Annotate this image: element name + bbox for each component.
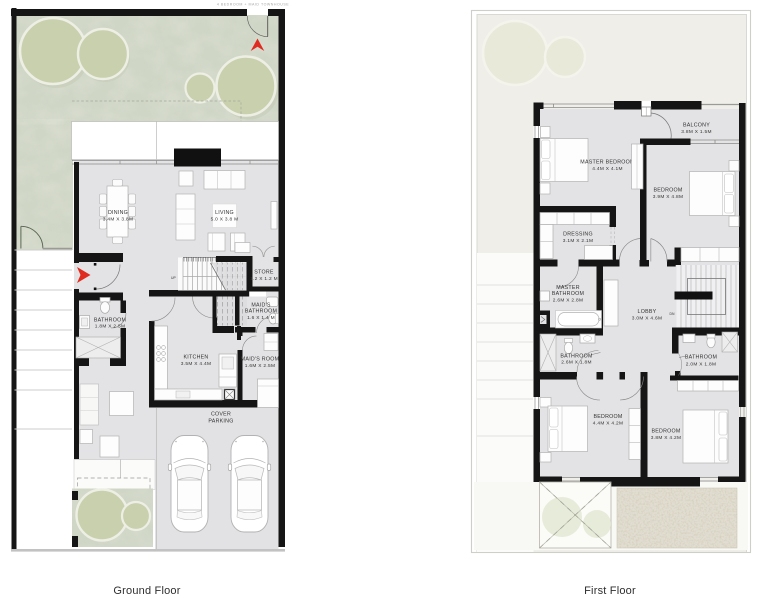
svg-text:BATHROOM: BATHROOM: [245, 309, 277, 315]
svg-text:2.6M X 2.8M: 2.6M X 2.8M: [553, 298, 584, 304]
svg-text:PARKING: PARKING: [208, 419, 233, 425]
svg-text:LOBBY: LOBBY: [638, 309, 657, 315]
svg-text:3.8M X 4.2M: 3.8M X 4.2M: [651, 435, 682, 441]
svg-text:1.6M X 2.5M: 1.6M X 2.5M: [245, 363, 276, 369]
svg-text:BATHROOM: BATHROOM: [685, 355, 717, 361]
svg-text:BATHROOM: BATHROOM: [560, 354, 592, 360]
svg-text:COVER: COVER: [211, 412, 231, 418]
svg-text:3.1M X 2.1M: 3.1M X 2.1M: [563, 238, 594, 244]
svg-text:2.6M X 1.8M: 2.6M X 1.8M: [561, 360, 592, 366]
svg-text:4 BEDROOM + MAID TOWNHOUSE: 4 BEDROOM + MAID TOWNHOUSE: [217, 3, 289, 7]
svg-text:KITCHEN: KITCHEN: [184, 355, 209, 361]
svg-text:2.0M X 1.8M: 2.0M X 1.8M: [686, 362, 717, 368]
svg-text:3.5M X 4.4M: 3.5M X 4.4M: [181, 361, 212, 367]
svg-text:Ground Floor: Ground Floor: [113, 585, 180, 597]
svg-text:MASTER BEDROOM: MASTER BEDROOM: [580, 160, 634, 166]
svg-text:BEDROOM: BEDROOM: [593, 414, 622, 420]
svg-text:3.9M X 4.8M: 3.9M X 4.8M: [653, 194, 684, 200]
svg-text:1.8M X 2.5M: 1.8M X 2.5M: [95, 324, 126, 330]
svg-text:4.4M X 4.2M: 4.4M X 4.2M: [593, 421, 624, 427]
svg-text:3.4M X 3.8M: 3.4M X 3.8M: [103, 217, 134, 223]
svg-text:3.0M X 4.6M: 3.0M X 4.6M: [632, 316, 663, 322]
svg-text:First Floor: First Floor: [584, 585, 636, 597]
svg-text:MAID'S ROOM: MAID'S ROOM: [241, 357, 280, 363]
svg-text:DN: DN: [670, 312, 675, 316]
svg-text:BEDROOM: BEDROOM: [653, 188, 682, 194]
svg-text:STORE: STORE: [254, 270, 274, 276]
svg-text:5.0 X 3.8 M: 5.0 X 3.8 M: [211, 217, 239, 223]
svg-text:4.4M X 4.1M: 4.4M X 4.1M: [592, 166, 623, 172]
svg-text:1.6 X 1.4 M: 1.6 X 1.4 M: [247, 315, 275, 321]
svg-text:BEDROOM: BEDROOM: [651, 429, 680, 435]
svg-text:BALCONY: BALCONY: [683, 123, 710, 129]
svg-text:LIVING: LIVING: [215, 210, 234, 216]
svg-text:BATHROOM: BATHROOM: [94, 318, 126, 324]
svg-text:DINING: DINING: [108, 210, 128, 216]
svg-text:3.8M X 1.5M: 3.8M X 1.5M: [681, 129, 712, 135]
svg-text:UP: UP: [171, 276, 176, 280]
svg-text:DRESSING: DRESSING: [563, 232, 593, 238]
svg-text:BATHROOM: BATHROOM: [552, 291, 584, 297]
svg-text:1.2 X 1.2 M: 1.2 X 1.2 M: [250, 276, 278, 282]
